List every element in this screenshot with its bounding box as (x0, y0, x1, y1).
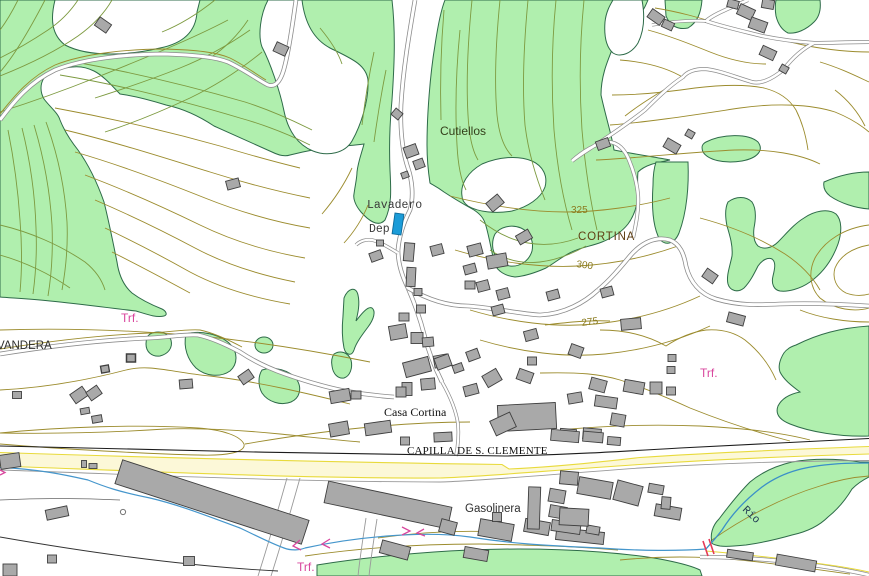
svg-text:Trf.: Trf. (121, 311, 139, 325)
svg-text:CORTINA: CORTINA (578, 231, 635, 243)
svg-text:Lavadero: Lavadero (367, 199, 422, 212)
svg-text:Trf.: Trf. (297, 560, 315, 574)
svg-text:Trf.: Trf. (700, 366, 718, 380)
svg-text:Gasolinera: Gasolinera (465, 503, 521, 515)
svg-text:Cutiellos: Cutiellos (440, 124, 486, 138)
svg-text:325: 325 (571, 205, 588, 216)
svg-text:CAPILLA DE S. CLEMENTE: CAPILLA DE S. CLEMENTE (407, 445, 548, 457)
svg-text:Dep: Dep (369, 223, 390, 236)
svg-text:VANDERA: VANDERA (0, 340, 52, 352)
svg-text:Casa Cortina: Casa Cortina (384, 405, 447, 419)
